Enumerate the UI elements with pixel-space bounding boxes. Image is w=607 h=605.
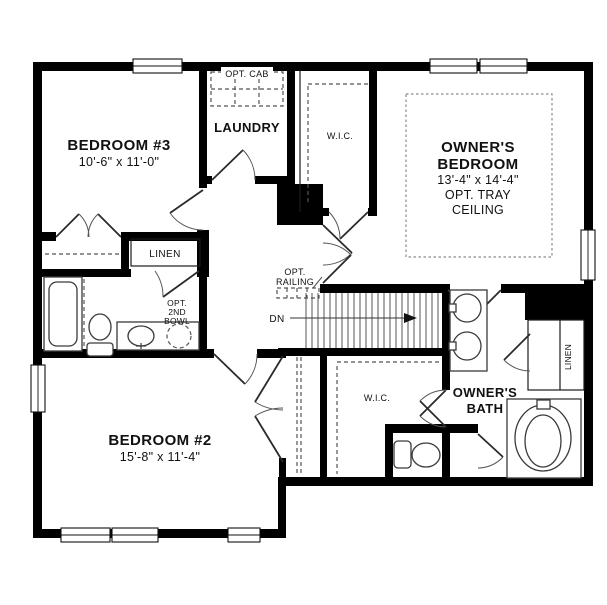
toilet — [87, 314, 113, 356]
wall — [199, 277, 207, 352]
interior-walls — [33, 70, 585, 478]
bathtub — [44, 277, 82, 351]
wall — [287, 70, 295, 184]
wall — [385, 424, 393, 478]
wall — [121, 232, 207, 241]
wall — [442, 284, 450, 390]
vanity-sink — [117, 322, 199, 350]
wall — [278, 348, 450, 356]
owners-bedroom-label-2: BEDROOM — [437, 156, 518, 173]
window — [430, 59, 477, 73]
wall — [41, 232, 56, 241]
wall — [255, 176, 287, 184]
owners-bedroom-dims: 13'-4" x 14'-4" — [437, 173, 518, 187]
wall — [320, 352, 327, 478]
linen-owners-closet — [528, 320, 584, 390]
window — [112, 528, 158, 542]
stairs-dn-label: DN — [269, 314, 284, 325]
bedroom2-dims: 15'-8" x 11'-4" — [120, 450, 200, 464]
wall — [320, 284, 450, 293]
owners-vanity — [449, 290, 487, 371]
wall — [442, 427, 450, 478]
wic-bottom-door — [420, 390, 446, 427]
opt-railing-label-1: OPT. — [284, 267, 305, 277]
window — [61, 528, 110, 542]
opt-2nd-bowl-label-3: BOWL — [164, 316, 190, 326]
floor-plan: BEDROOM #3 10'-6" x 11'-0" LAUNDRY OPT. … — [0, 0, 607, 600]
bedroom3-label: BEDROOM #3 — [67, 137, 170, 154]
wall — [33, 62, 42, 538]
window — [31, 365, 45, 412]
window — [133, 59, 182, 73]
toilet — [394, 441, 440, 468]
linen-owners-door — [504, 334, 530, 371]
wall — [385, 424, 478, 433]
opt-cab-label: OPT. CAB — [225, 69, 268, 79]
wall — [294, 208, 329, 216]
wall — [278, 477, 286, 538]
wall — [369, 70, 377, 216]
owners-bedroom-opt-1: OPT. TRAY — [445, 188, 512, 202]
wic-bottom-label: W.I.C. — [364, 393, 390, 403]
stair-treads — [306, 293, 438, 348]
owners-bedroom-opt-2: CEILING — [452, 203, 504, 217]
linen-hall-door — [155, 271, 199, 297]
bedroom2-closet-doors — [255, 356, 283, 462]
floor-plan-drawing: BEDROOM #3 10'-6" x 11'-0" LAUNDRY OPT. … — [0, 0, 607, 600]
bedroom2-door — [214, 354, 257, 384]
bedroom3-closet-doors — [56, 214, 121, 237]
laundry-label: LAUNDRY — [214, 120, 280, 135]
owners-bedroom-door — [323, 225, 352, 283]
wall — [41, 269, 131, 277]
toilet-room-door — [478, 434, 503, 468]
wic-top-label: W.I.C. — [327, 131, 353, 141]
soaking-tub — [507, 399, 581, 478]
window — [581, 230, 595, 280]
wall — [199, 176, 212, 184]
owners-bath-label-2: BATH — [467, 401, 504, 416]
bedroom2-label: BEDROOM #2 — [108, 432, 211, 449]
linen-hall-label: LINEN — [149, 249, 180, 260]
wic-top-door — [329, 212, 368, 239]
opt-railing-label-2: RAILING — [276, 277, 314, 287]
wall — [199, 70, 207, 188]
linen-owners-label: LINEN — [563, 344, 573, 370]
owners-bath-label-1: OWNER'S — [453, 385, 517, 400]
window — [228, 528, 260, 542]
wall — [501, 284, 585, 293]
window — [480, 59, 527, 73]
wall — [197, 230, 209, 277]
bedroom3-dims: 10'-6" x 11'-0" — [79, 155, 159, 169]
laundry-door — [212, 150, 255, 180]
bedroom3-door — [170, 190, 203, 230]
owners-bedroom-label-1: OWNER'S — [441, 139, 515, 156]
